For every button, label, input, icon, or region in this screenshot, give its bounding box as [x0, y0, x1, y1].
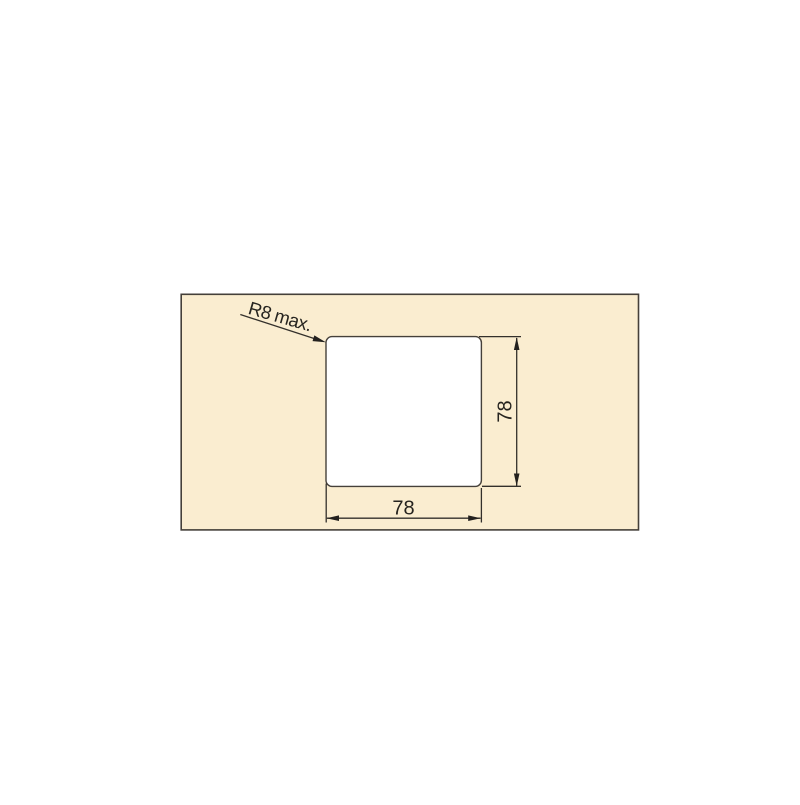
svg-text:78: 78 — [392, 498, 414, 520]
svg-text:78: 78 — [495, 400, 517, 422]
